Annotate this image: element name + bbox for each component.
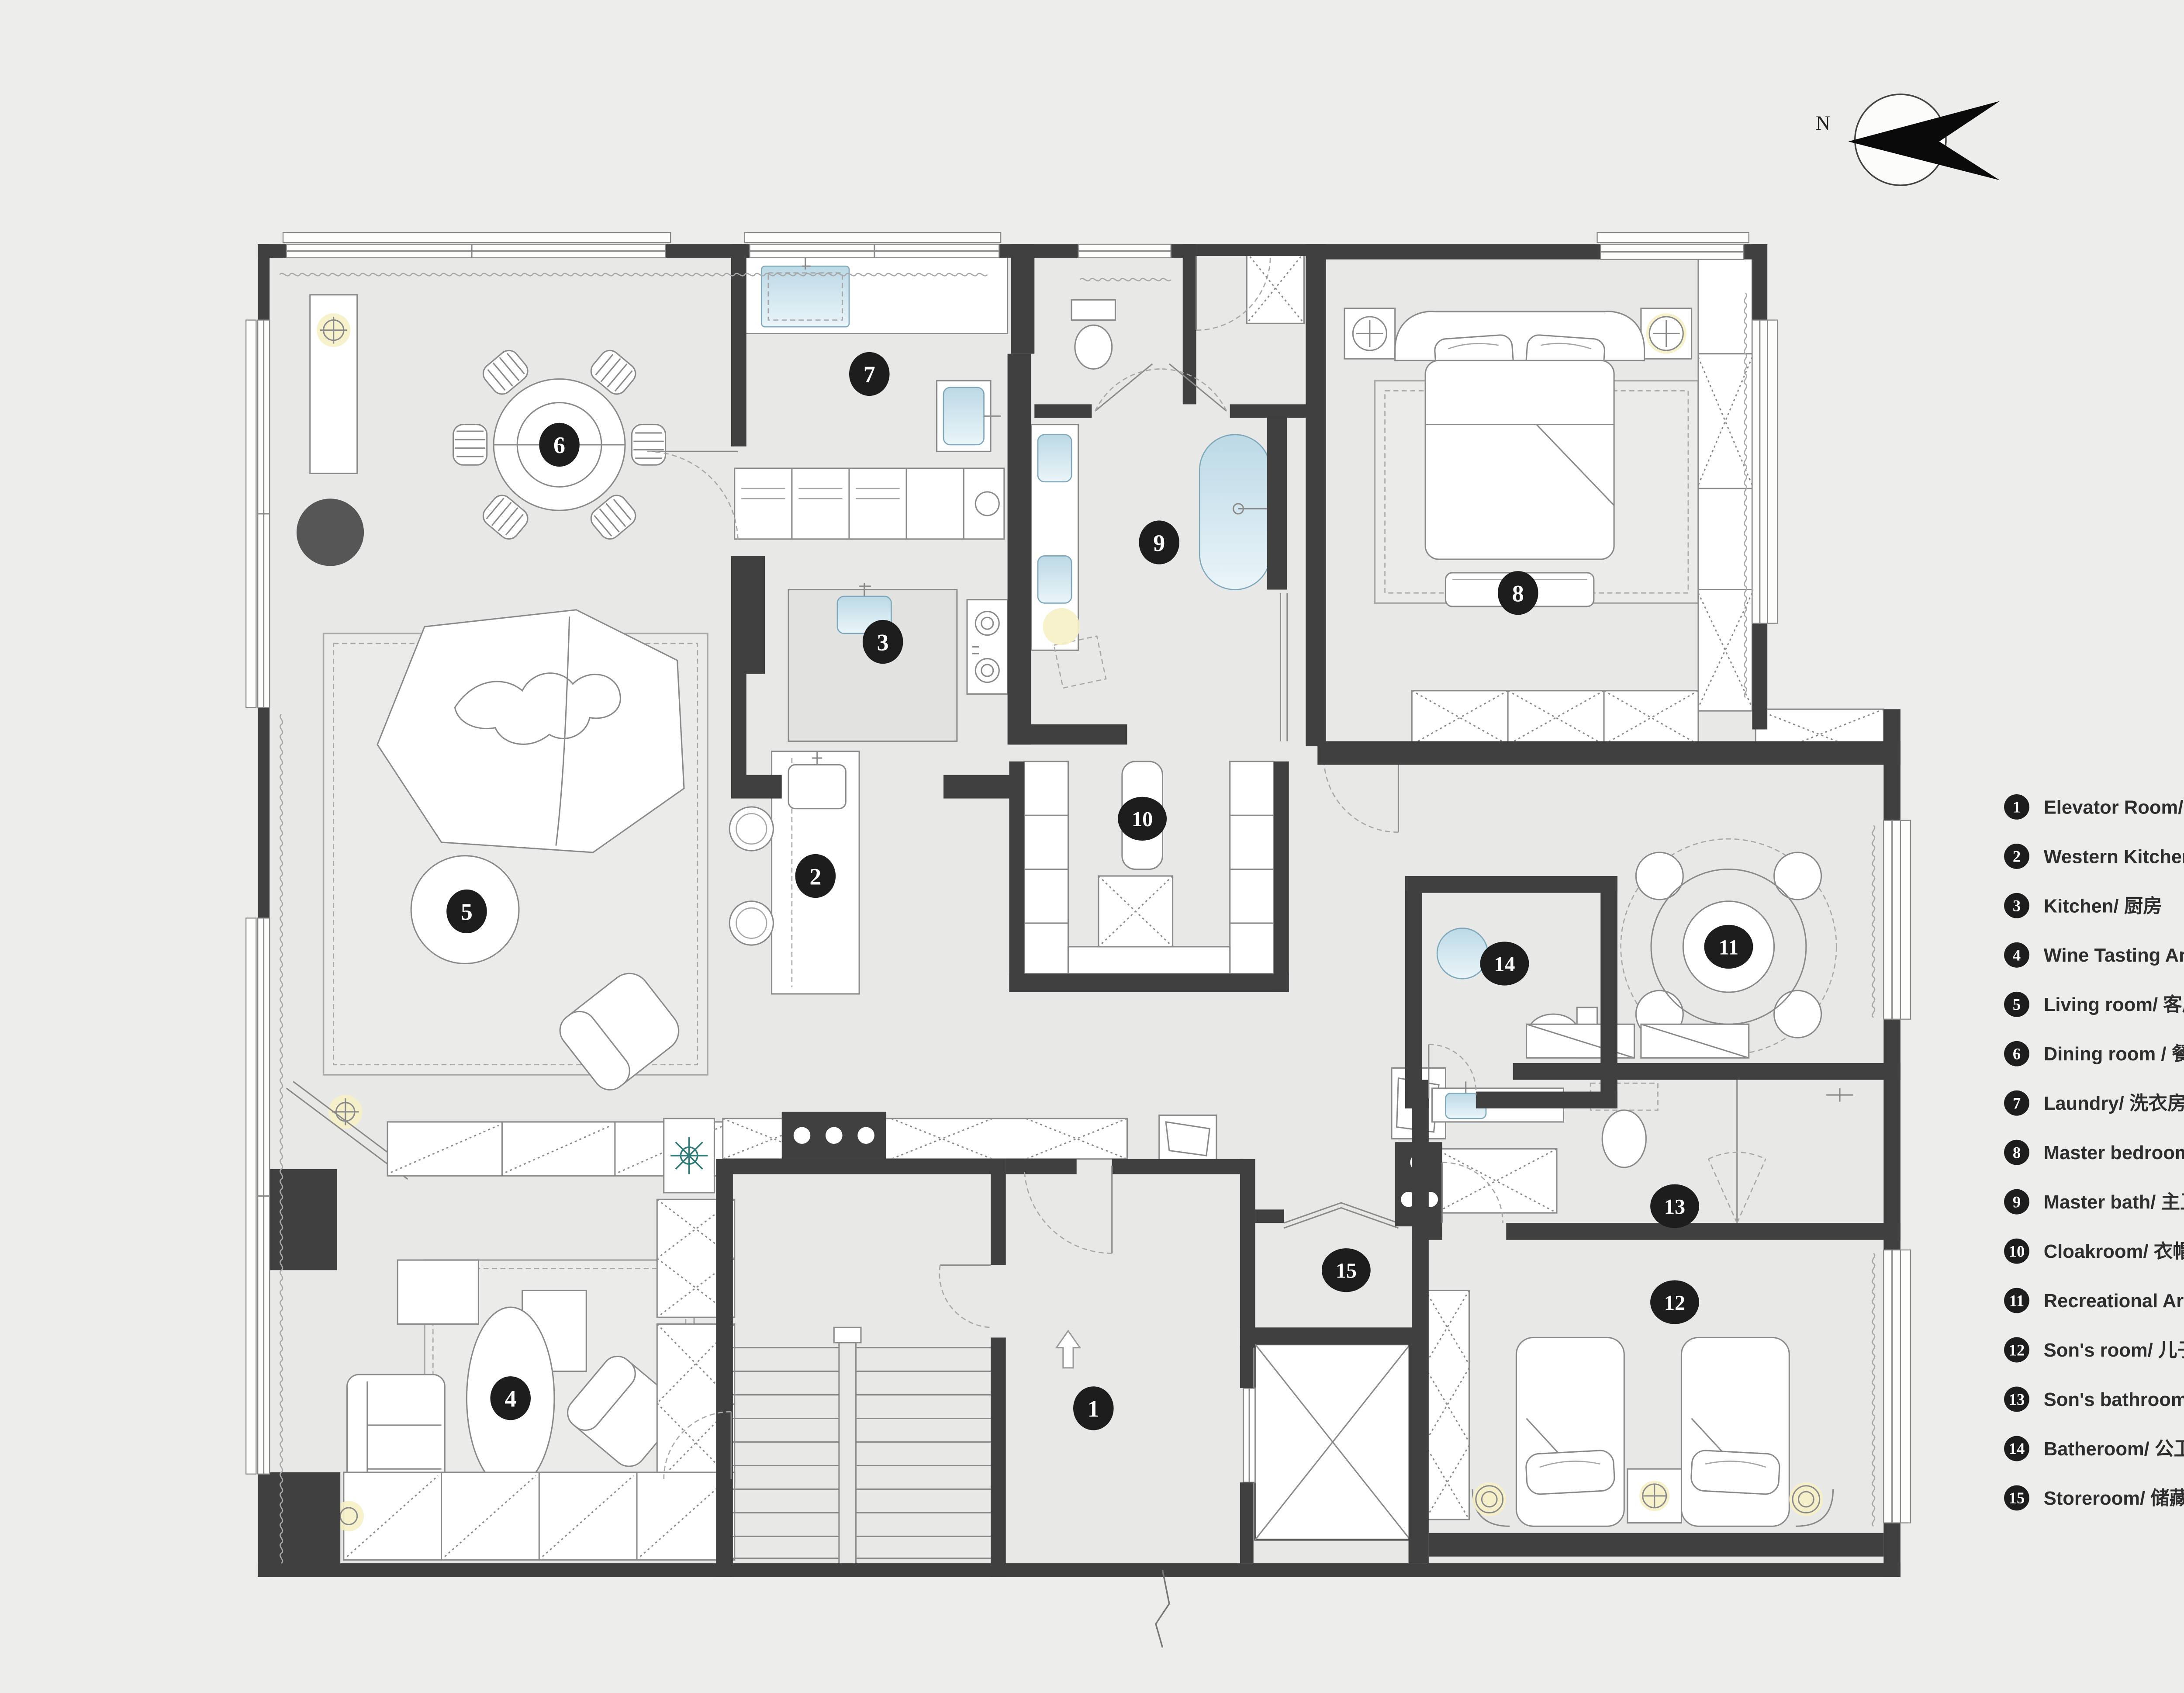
svg-text:5: 5 — [461, 899, 473, 925]
svg-text:7: 7 — [2013, 1094, 2021, 1112]
svg-text:10: 10 — [2009, 1242, 2025, 1260]
bed — [1681, 1337, 1789, 1526]
svg-text:Son's room/ 儿子房: Son's room/ 儿子房 — [2044, 1340, 2184, 1361]
room-badge-14: 14 — [1480, 942, 1529, 985]
svg-text:5: 5 — [2013, 996, 2021, 1014]
svg-text:6: 6 — [2013, 1045, 2021, 1063]
room-badge-7: 7 — [849, 352, 890, 396]
svg-text:13: 13 — [1664, 1195, 1685, 1219]
wardrobe-column — [1425, 1290, 1469, 1519]
svg-text:2: 2 — [2013, 848, 2021, 866]
svg-text:8: 8 — [1512, 581, 1524, 607]
svg-text:Elevator Room/ 电梯间: Elevator Room/ 电梯间 — [2044, 797, 2184, 818]
svg-text:2: 2 — [809, 863, 821, 890]
svg-text:10: 10 — [1132, 808, 1153, 831]
room-badge-5: 5 — [446, 890, 487, 933]
elevator-shaft — [1244, 1344, 1410, 1540]
svg-text:Batheroom/ 公卫: Batheroom/ 公卫 — [2044, 1439, 2184, 1460]
svg-text:1: 1 — [2013, 798, 2021, 816]
room-badge-4: 4 — [490, 1376, 531, 1420]
pillow — [1690, 1450, 1780, 1495]
svg-text:13: 13 — [2009, 1390, 2025, 1408]
room-badge-1: 1 — [1073, 1386, 1114, 1430]
svg-text:1: 1 — [1088, 1396, 1099, 1422]
round-basin — [1437, 928, 1488, 979]
stair-divider — [839, 1341, 856, 1570]
room-badge-15: 15 — [1322, 1248, 1371, 1292]
room-badge-11: 11 — [1704, 925, 1753, 969]
svg-text:12: 12 — [2009, 1341, 2025, 1359]
headboard — [1395, 312, 1645, 360]
island-sink — [788, 765, 846, 808]
svg-text:9: 9 — [1153, 530, 1165, 556]
svg-text:12: 12 — [1664, 1291, 1685, 1315]
lamp-glow-icon — [1043, 608, 1080, 645]
svg-text:14: 14 — [1494, 953, 1515, 976]
svg-text:4: 4 — [2013, 946, 2021, 964]
svg-text:8: 8 — [2013, 1143, 2021, 1161]
cloakroom — [1024, 762, 1274, 974]
cooktop — [967, 600, 1008, 694]
svg-text:4: 4 — [505, 1386, 516, 1412]
closet-bottom — [1068, 947, 1230, 974]
svg-text:6: 6 — [553, 432, 565, 458]
round-dark-rug — [297, 499, 364, 566]
room-badge-8: 8 — [1498, 571, 1538, 615]
room-badge-9: 9 — [1139, 520, 1179, 564]
toilet-tank — [1071, 300, 1115, 320]
svg-text:7: 7 — [864, 361, 875, 388]
floorplan-canvas: 1 2 3 4 5 6 7 8 9 10 11 12 13 14 15 N 1E… — [0, 0, 2184, 1693]
plant-icon — [670, 1137, 708, 1174]
toilet — [1602, 1110, 1646, 1167]
svg-text:Living room/ 客厅: Living room/ 客厅 — [2044, 994, 2184, 1015]
svg-text:3: 3 — [877, 629, 889, 655]
svg-text:Laundry/ 洗衣房: Laundry/ 洗衣房 — [2044, 1093, 2184, 1114]
svg-text:Western Kitchen/ 西厨: Western Kitchen/ 西厨 — [2044, 846, 2184, 867]
svg-text:Recreational Areas/ 休闲区: Recreational Areas/ 休闲区 — [2044, 1291, 2184, 1312]
toilet-bowl — [1075, 325, 1112, 369]
svg-text:Wine Tasting Area/ 品酒区: Wine Tasting Area/ 品酒区 — [2044, 945, 2184, 966]
chair — [1774, 852, 1821, 900]
room-badge-13: 13 — [1650, 1184, 1699, 1228]
newel-post — [834, 1327, 861, 1343]
svg-text:3: 3 — [2013, 897, 2021, 915]
svg-text:Cloakroom/ 衣帽间: Cloakroom/ 衣帽间 — [2044, 1241, 2184, 1262]
svg-text:Kitchen/ 厨房: Kitchen/ 厨房 — [2044, 896, 2162, 917]
laundry-base-cabinets — [735, 468, 1004, 539]
svg-text:11: 11 — [1719, 936, 1739, 959]
room-badge-2: 2 — [795, 854, 836, 898]
room-badge-10: 10 — [1118, 797, 1167, 841]
wine-cabinet-row — [344, 1472, 735, 1560]
entry-vestibule — [1247, 253, 1304, 323]
room-badge-3: 3 — [863, 620, 903, 664]
svg-text:Storeroom/ 储藏室: Storeroom/ 储藏室 — [2044, 1488, 2184, 1509]
pillow — [1525, 1450, 1615, 1495]
room-badge-6: 6 — [539, 423, 580, 467]
svg-text:15: 15 — [1336, 1260, 1357, 1283]
chair — [1636, 852, 1683, 900]
bed — [1516, 1337, 1624, 1526]
closet-right — [1230, 762, 1274, 974]
svg-text:Master bath/ 主卫: Master bath/ 主卫 — [2044, 1192, 2184, 1213]
curtain-master — [1744, 293, 1747, 697]
room-badge-12: 12 — [1650, 1280, 1699, 1324]
compass-north-label: N — [1816, 112, 1830, 135]
svg-text:11: 11 — [2009, 1291, 2025, 1309]
wc-room — [1071, 300, 1115, 369]
svg-text:15: 15 — [2009, 1489, 2025, 1507]
console — [397, 1260, 478, 1324]
svg-text:Dining room / 餐厅: Dining room / 餐厅 — [2044, 1044, 2184, 1065]
svg-text:14: 14 — [2009, 1440, 2025, 1458]
svg-text:Son's bathroom/ 儿子卫生间: Son's bathroom/ 儿子卫生间 — [2044, 1389, 2184, 1410]
chair — [1774, 990, 1821, 1038]
closet-left — [1024, 762, 1068, 974]
bed — [1425, 360, 1614, 559]
svg-text:9: 9 — [2013, 1193, 2021, 1211]
svg-text:Master bedroom/ 主卧: Master bedroom/ 主卧 — [2044, 1143, 2184, 1163]
